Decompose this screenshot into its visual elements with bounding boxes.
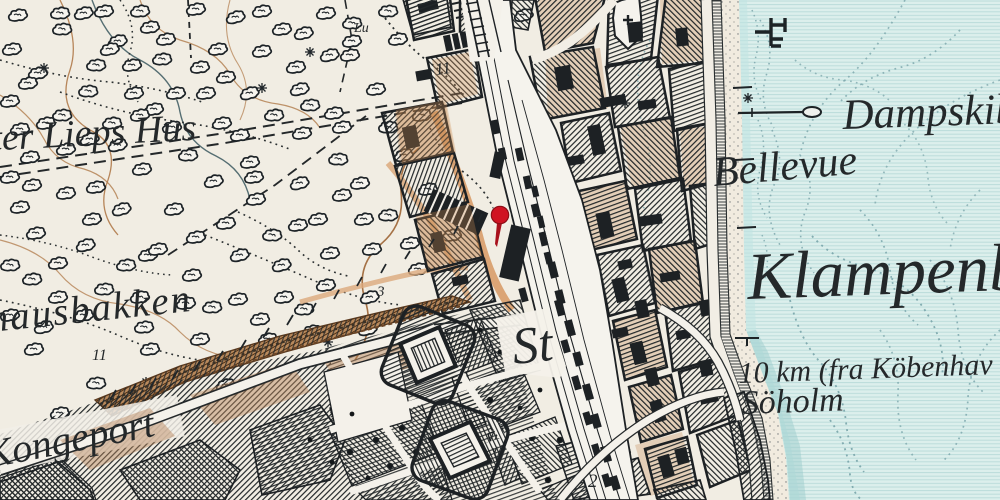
svg-text:Dampskibsb: Dampskibsb	[841, 85, 1000, 139]
svg-text:2: 2	[588, 471, 598, 492]
svg-text:3: 3	[376, 284, 385, 300]
svg-text:Klampenbo: Klampenbo	[745, 229, 1000, 314]
svg-text:Lu: Lu	[353, 21, 369, 36]
svg-text:St: St	[509, 315, 557, 376]
svg-text:11: 11	[434, 58, 452, 79]
svg-text:Söholm: Söholm	[741, 381, 844, 422]
svg-text:11: 11	[92, 347, 107, 364]
